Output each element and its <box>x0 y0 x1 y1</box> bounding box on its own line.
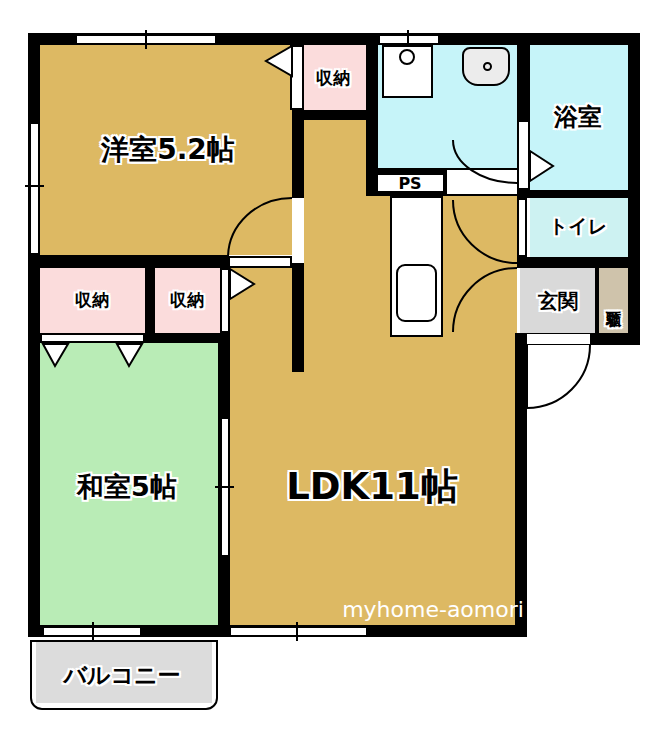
door-toilet-strip <box>517 198 527 257</box>
wall-closet-divider <box>145 268 155 333</box>
wall-western-right-stub <box>292 263 304 372</box>
washing-machine-faucet-icon <box>399 49 415 65</box>
kitchen-sink-icon <box>396 264 437 322</box>
window-tick <box>25 185 44 187</box>
ldk-mid-floor <box>230 268 292 333</box>
front-door-arc <box>527 345 590 408</box>
watermark-text: myhome-aomori <box>342 597 524 622</box>
window-tick <box>296 622 298 641</box>
window-tick <box>145 30 147 49</box>
shoe-cabinet-floor <box>599 268 628 333</box>
entrance-label: 玄関 <box>538 288 578 315</box>
bathroom-label: 浴室 <box>554 101 602 133</box>
wall-bath-bottom <box>517 190 640 198</box>
wall-toilet-bottom <box>517 257 640 268</box>
closet-top-label: 収納 <box>316 67 350 90</box>
floor-plan: 洋室5.2帖 収納 浴室 トイレ PS 収納 収納 和室5帖 LDK11帖 玄関… <box>0 0 664 746</box>
balcony-label: バルコニー <box>63 660 180 691</box>
front-door-opening <box>527 333 590 345</box>
wall-right-upper <box>628 33 640 345</box>
closet-left-label: 収納 <box>75 289 109 312</box>
window-washroom-top <box>378 34 440 45</box>
pipe-space-label: PS <box>398 174 421 193</box>
door-closet-top-strip <box>290 45 304 110</box>
wall-bath-divider <box>517 33 530 120</box>
wall-shoe-cabinet-divider <box>595 268 599 333</box>
wash-basin-drain-icon <box>483 62 492 71</box>
wall-closet-row-bottom <box>145 333 228 343</box>
window-western-left <box>29 122 40 255</box>
door-bathroom-strip <box>517 120 530 190</box>
wall-ldk-right <box>515 333 527 637</box>
ldk-label: LDK11帖 <box>286 462 457 512</box>
wall-western-bottom <box>28 255 228 268</box>
door-western-leaf <box>228 256 292 268</box>
door-japanese-closet-track <box>40 333 145 343</box>
doorway-washroom <box>447 168 517 196</box>
window-tick <box>92 622 94 641</box>
window-ldk-bottom <box>229 626 368 637</box>
closet-right-label: 収納 <box>170 289 204 312</box>
toilet-label: トイレ <box>549 214 607 240</box>
window-tick <box>215 486 234 488</box>
western-room-label: 洋室5.2帖 <box>101 131 235 169</box>
wall-western-right-upper <box>292 110 304 198</box>
japanese-room-label: 和室5帖 <box>77 469 177 505</box>
door-closet-right-strip <box>220 268 230 333</box>
hallway-floor <box>304 110 366 196</box>
